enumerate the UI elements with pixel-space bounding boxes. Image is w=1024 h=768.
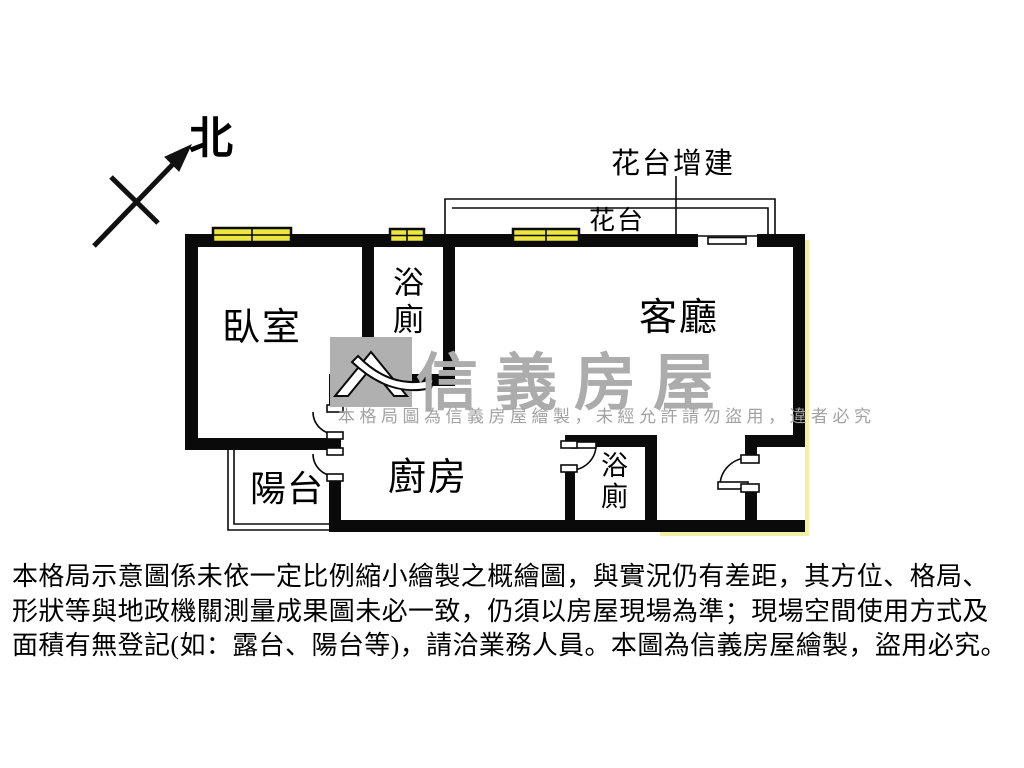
wall-entry-lower	[745, 487, 757, 532]
sliding-door	[698, 236, 757, 244]
wall-bath2-left	[565, 470, 575, 532]
window-living-icon	[513, 229, 579, 242]
room-label-balcony: 陽台	[250, 460, 324, 512]
flower-addition-title: 花台增建	[611, 140, 735, 182]
wall-top-right	[757, 234, 805, 247]
room-label-bathroom1: 浴廁	[383, 266, 428, 340]
wall-left	[185, 247, 198, 450]
window-bedroom-icon	[213, 228, 291, 242]
north-arrow-icon	[94, 145, 191, 246]
disclaimer-text: 本格局示意圖係未依一定比例縮小繪製之概繪圖，與實況仍有差距，其方位、格局、 形狀…	[12, 560, 1007, 664]
wall-bedroom-right	[362, 247, 374, 346]
north-label: 北	[189, 102, 233, 166]
wall-entry-step	[745, 435, 805, 447]
room-label-kitchen: 廚房	[388, 446, 468, 501]
wall-bedroom-bottom	[185, 438, 341, 450]
disclaimer-line-1: 本格局示意圖係未依一定比例縮小繪製之概繪圖，與實況仍有差距，其方位、格局、	[12, 560, 1007, 595]
door-bathroom2	[561, 441, 596, 472]
room-label-bedroom: 臥室	[222, 296, 302, 351]
windows	[213, 228, 579, 242]
disclaimer-line-3: 面積有無登記(如：露台、陽台等)，請洽業務人員。本圖為信義房屋繪製，盜用必究。	[12, 629, 1007, 664]
wall-bath2-right	[645, 447, 657, 532]
floor-plan-page: 北 花台增建 花台 臥室 浴廁 客廳 陽台 廚房 浴廁 信義房屋 本格局圖為信義…	[0, 0, 1024, 768]
room-label-bathroom2: 浴廁	[593, 451, 632, 513]
window-bath1-icon	[390, 229, 424, 242]
disclaimer-line-2: 形狀等與地政機關測量成果圖未必一致，仍須以房屋現場為準；現場空間使用方式及	[12, 595, 1007, 630]
door-entry	[718, 455, 759, 492]
flower-ledge-label: 花台	[589, 200, 645, 237]
watermark-notice: 本格局圖為信義房屋繪製，未經允許請勿盜用，違者必究	[338, 402, 876, 427]
